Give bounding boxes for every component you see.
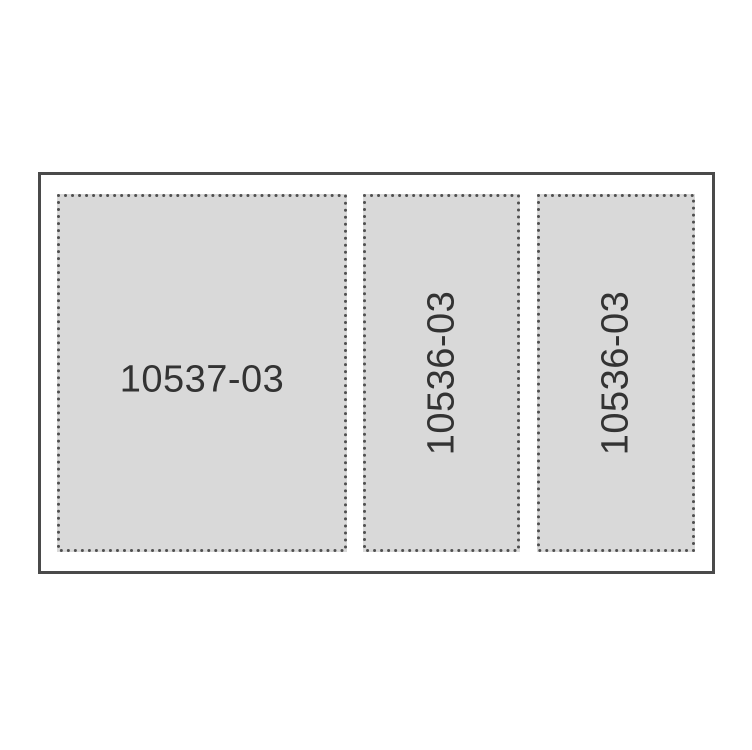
panel-label: 10536-03 — [595, 291, 638, 456]
panel-10536-03-right: 10536-03 — [537, 194, 695, 552]
panel-label: 10537-03 — [120, 359, 285, 402]
diagram-canvas: 10537-03 10536-03 10536-03 — [0, 0, 752, 750]
panel-label: 10536-03 — [420, 291, 463, 456]
panel-10536-03-left: 10536-03 — [363, 194, 520, 552]
panel-10537-03: 10537-03 — [57, 194, 347, 552]
